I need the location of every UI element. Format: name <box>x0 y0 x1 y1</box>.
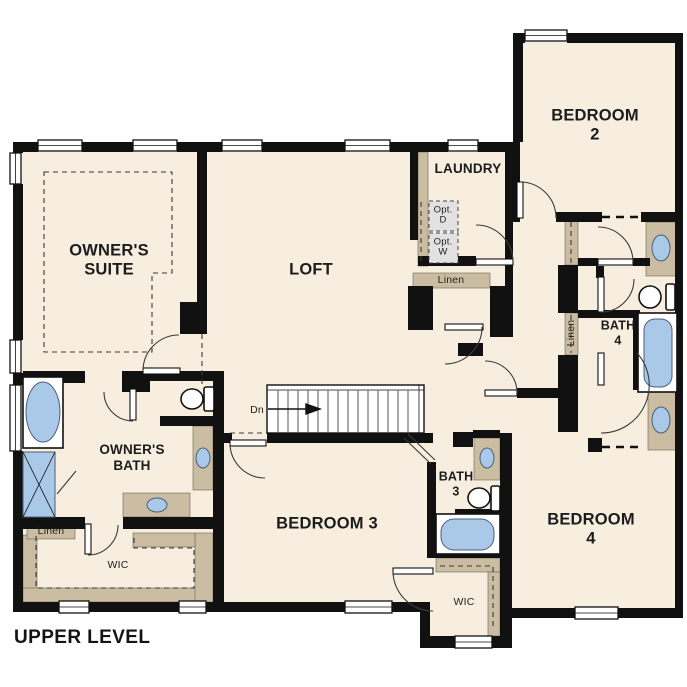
bath3-sink <box>480 448 494 468</box>
floor-plan: OWNER'S SUITE LOFT LAUNDRY BEDROOM 2 BED… <box>0 0 687 687</box>
wic3-shelf-right <box>488 572 500 636</box>
bedroom3-wic-label: WIC <box>453 596 474 608</box>
bath3-tub <box>436 514 500 554</box>
owners-sink-2 <box>147 498 167 512</box>
bath4-toilet <box>639 284 675 310</box>
owners-toilet <box>181 387 214 411</box>
loft-label: LOFT <box>289 260 333 279</box>
bath4-label: BATH 4 <box>601 318 636 348</box>
bedroom3-label: BEDROOM 3 <box>276 514 378 533</box>
bedroom2-label: BEDROOM 2 <box>549 107 641 146</box>
owners-wic-label: WIC <box>107 559 128 571</box>
bath4-sink-top <box>652 235 670 261</box>
owners-wic-shelf-topright <box>133 533 195 547</box>
bedroom4-vestibule-door <box>598 353 604 385</box>
stairs <box>267 385 424 433</box>
owners-suite-label: OWNER'S SUITE <box>69 242 149 281</box>
hall-linen-label: Linen <box>565 320 577 347</box>
owners-suite-door <box>143 368 180 374</box>
hall-door <box>485 390 517 396</box>
owners-linen-label: Linen <box>38 525 65 537</box>
owners-wic-shelf-right <box>195 533 213 602</box>
bedroom4-label: BEDROOM 4 <box>543 511 639 550</box>
laundry-linen-label: Linen <box>438 274 465 286</box>
optional-dryer-label: Opt. D <box>434 206 453 227</box>
floor-plan-drawing <box>0 0 687 687</box>
optional-washer-label: Opt. W <box>434 238 453 259</box>
level-title: UPPER LEVEL <box>14 627 150 649</box>
owners-wic-door <box>85 524 91 554</box>
owners-sink-1 <box>196 448 210 468</box>
laundry-door <box>476 259 513 265</box>
owners-bath-label: OWNER'S BATH <box>99 442 164 474</box>
laundry-label: LAUNDRY <box>435 161 502 177</box>
owners-toilet-door <box>130 389 136 420</box>
bath4-toilet-door <box>598 277 604 312</box>
owners-wic-shelf-bottom <box>23 588 213 602</box>
laundry-counter <box>418 152 428 266</box>
bedroom3-door <box>230 440 266 446</box>
bath4-vanity-door <box>598 259 633 265</box>
bath4-sink-bottom <box>652 407 670 433</box>
wic3-shelf-top <box>436 558 500 572</box>
linen-closet-door <box>445 324 483 330</box>
owners-bathtub <box>23 377 63 448</box>
bath3-label: BATH 3 <box>439 469 474 499</box>
bedroom2-door <box>517 182 523 218</box>
wic3-door <box>393 568 433 574</box>
stairs-dn-label: Dn <box>250 404 264 416</box>
bath4-tub <box>638 313 677 392</box>
